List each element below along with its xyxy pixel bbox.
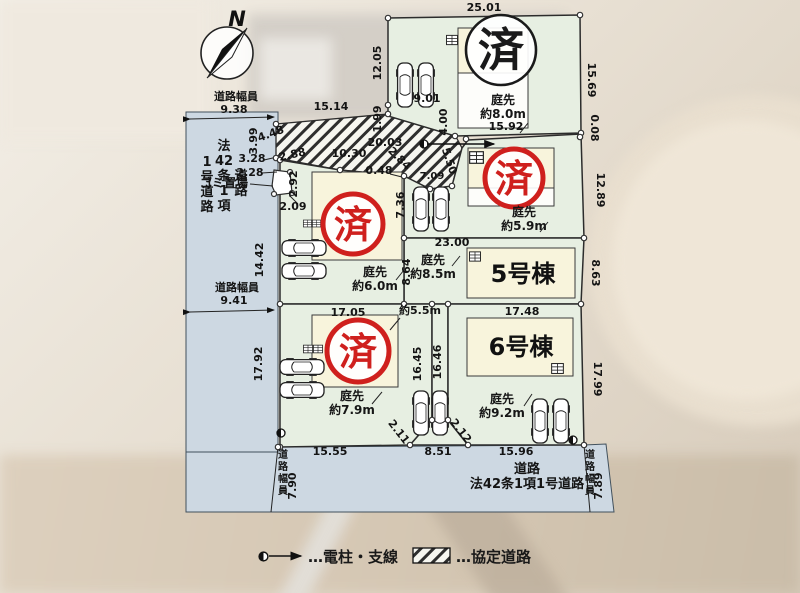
entrance-icon bbox=[447, 35, 458, 44]
dimension-label: 7.09 bbox=[420, 171, 445, 182]
dimension-label: 15.69 bbox=[585, 63, 598, 98]
left-road-name: 法42条1項 bbox=[215, 138, 233, 214]
north-compass: N bbox=[201, 7, 253, 79]
legend-hatch-swatch bbox=[413, 548, 450, 563]
dimension-label: 9.41 bbox=[220, 294, 247, 307]
dimension-label: 8.64 bbox=[400, 258, 413, 285]
entrance-icon bbox=[470, 152, 484, 164]
dimension-label: 15.92 bbox=[489, 120, 524, 133]
dimension-label: 9.38 bbox=[220, 103, 247, 116]
dimension-label: 2.92 bbox=[287, 170, 300, 197]
bottom-road-name: 法42条1項1号道路 bbox=[470, 476, 585, 492]
dimension-label: 2.09 bbox=[279, 200, 306, 213]
sold-stamp-text: 済 bbox=[478, 23, 525, 77]
legend-agreement-road-label: …協定道路 bbox=[456, 548, 532, 566]
car-icon bbox=[282, 262, 326, 280]
dimension-label: 12.89 bbox=[594, 173, 607, 208]
entrance-icon bbox=[303, 345, 312, 353]
car-icon bbox=[412, 187, 430, 231]
legend: …電柱・支線 …協定道路 bbox=[259, 548, 532, 566]
building-5-name: 5号棟 bbox=[491, 260, 557, 288]
site-plan-drawing: 済 済 済 済 5号棟 6号棟 庭先 約8.0m 庭先 約5.9m 庭先 約6.… bbox=[0, 0, 800, 593]
car-icon bbox=[282, 239, 326, 257]
garden-label: 庭先 bbox=[491, 92, 515, 107]
car-icon bbox=[280, 381, 324, 399]
car-icon bbox=[432, 187, 450, 231]
dimension-label: 16.46 bbox=[431, 344, 444, 379]
garden-label: 庭先 bbox=[340, 388, 364, 403]
north-label: N bbox=[228, 7, 246, 31]
dimension-label: 0.48 bbox=[365, 164, 392, 177]
dimension-label: 4.00 bbox=[437, 108, 450, 135]
legend-pole-label: …電柱・支線 bbox=[308, 548, 398, 566]
garden-label: 庭先 bbox=[512, 204, 536, 219]
dimension-label: 7.89 bbox=[592, 472, 605, 499]
car-icon bbox=[531, 399, 549, 443]
dimension-label: 17.92 bbox=[252, 347, 265, 382]
dimension-label: 7.36 bbox=[394, 191, 407, 218]
garden-value: 約7.9m bbox=[329, 402, 375, 417]
dimension-label: 10.30 bbox=[332, 147, 367, 160]
dimension-label: 15.96 bbox=[499, 445, 534, 458]
dimension-label: 道路幅員 bbox=[214, 89, 258, 103]
garden-label: 庭先 bbox=[490, 391, 514, 406]
building-6-name: 6号棟 bbox=[489, 333, 555, 361]
dimension-label: 15.14 bbox=[314, 100, 349, 113]
entrance-icon bbox=[313, 345, 322, 353]
left-road-name: 道路 bbox=[234, 168, 248, 199]
dimension-label: 17.48 bbox=[505, 305, 540, 318]
dimension-label: 8.63 bbox=[589, 259, 602, 286]
dimension-label: 16.45 bbox=[411, 347, 424, 382]
garden-value: 約8.0m bbox=[480, 106, 526, 121]
dimension-label: 9.01 bbox=[413, 92, 440, 105]
dimension-label: 25.01 bbox=[467, 1, 502, 14]
dimension-label: 12.05 bbox=[371, 46, 384, 81]
dimension-label: 23.00 bbox=[435, 236, 470, 249]
dimension-label: 1.99 bbox=[371, 105, 384, 132]
garden-label: 庭先 bbox=[363, 264, 387, 279]
garden-value: 約9.2m bbox=[479, 405, 525, 420]
garden-value: 約5.9m bbox=[501, 218, 547, 233]
bottom-road-name: 道路 bbox=[514, 461, 541, 477]
utility-pole-icon bbox=[569, 436, 577, 444]
dimension-label: 約5.5m bbox=[399, 303, 441, 317]
car-icon bbox=[552, 399, 570, 443]
garden-label: 庭先 bbox=[421, 252, 445, 267]
dimension-label: 3.28 bbox=[238, 152, 265, 165]
dimension-label: 17.05 bbox=[331, 306, 366, 319]
dimension-label: 8.51 bbox=[424, 445, 451, 458]
sold-stamp-text: 済 bbox=[495, 157, 534, 201]
garden-value: 約6.0m bbox=[352, 278, 398, 293]
dimension-label: 道路幅員 bbox=[215, 280, 259, 294]
car-icon bbox=[280, 358, 324, 376]
sold-stamp-text: 済 bbox=[339, 330, 378, 374]
dimension-label: 14.42 bbox=[253, 243, 266, 278]
entrance-icon bbox=[552, 364, 564, 374]
sold-stamp-text: 済 bbox=[334, 203, 373, 247]
legend-pole-icon bbox=[259, 552, 268, 561]
dimension-label: 17.99 bbox=[591, 362, 604, 397]
utility-pole-icon bbox=[420, 140, 428, 148]
entrance-icon bbox=[470, 252, 481, 261]
car-icon bbox=[396, 63, 414, 107]
car-icon bbox=[412, 391, 430, 435]
entrance-icon bbox=[312, 220, 320, 227]
entrance-icon bbox=[303, 220, 311, 227]
car-icon bbox=[431, 391, 449, 435]
dimension-label: 0.08 bbox=[588, 114, 601, 141]
garden-value: 約8.5m bbox=[410, 266, 456, 281]
utility-pole-icon bbox=[277, 429, 285, 437]
dimension-label: 15.55 bbox=[313, 445, 348, 458]
site-plan-page: 済 済 済 済 5号棟 6号棟 庭先 約8.0m 庭先 約5.9m 庭先 約6.… bbox=[0, 0, 800, 593]
dimension-label: 7.90 bbox=[286, 472, 299, 499]
